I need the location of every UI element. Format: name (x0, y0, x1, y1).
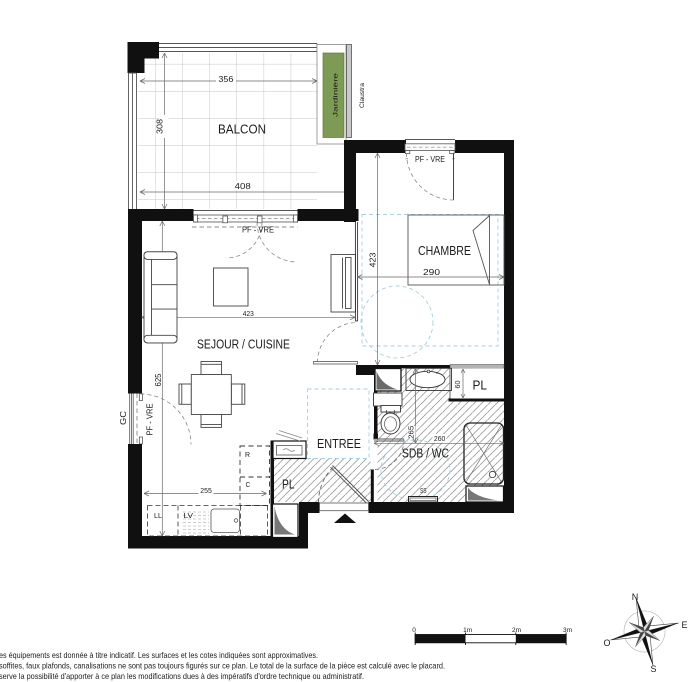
svg-text:PF - VRE: PF - VRE (146, 404, 155, 436)
svg-text:es équipements est donnée à ti: es équipements est donnée à titre indica… (0, 651, 318, 660)
svg-text:SEJOUR / CUISINE: SEJOUR / CUISINE (197, 338, 290, 352)
svg-text:LL: LL (154, 511, 162, 520)
svg-text:2m: 2m (512, 627, 521, 634)
svg-text:260: 260 (434, 434, 446, 443)
svg-text:PL: PL (473, 378, 488, 393)
svg-text:PF - VRE: PF - VRE (415, 155, 445, 164)
svg-text:60: 60 (455, 380, 462, 388)
svg-text:BALCON: BALCON (218, 123, 266, 137)
svg-text:265: 265 (407, 426, 416, 439)
svg-text:SS: SS (420, 488, 427, 495)
svg-text:GC: GC (119, 411, 128, 425)
svg-text:3m: 3m (563, 627, 572, 634)
svg-text:serve la possibilité d'apporte: serve la possibilité d'apporter à ce pla… (0, 672, 364, 681)
svg-text:R: R (245, 450, 251, 459)
svg-text:1m: 1m (463, 627, 472, 634)
svg-text:0: 0 (412, 627, 416, 634)
svg-text:423: 423 (369, 252, 378, 268)
svg-text:PF - VRE: PF - VRE (242, 226, 274, 235)
svg-text:Claustra: Claustra (359, 83, 366, 108)
svg-text:ENTREE: ENTREE (317, 437, 361, 451)
svg-text:423: 423 (243, 309, 254, 318)
svg-text:Jardinière: Jardinière (333, 72, 340, 117)
svg-text:C: C (246, 480, 251, 489)
svg-text:356: 356 (218, 75, 234, 84)
svg-text:SDB / WC: SDB / WC (402, 447, 449, 461)
svg-text:N: N (632, 592, 639, 602)
svg-text:O: O (603, 638, 610, 648)
svg-text:408: 408 (235, 182, 252, 191)
svg-text:625: 625 (154, 373, 163, 387)
svg-text:CHAMBRE: CHAMBRE (418, 244, 471, 258)
svg-text:E: E (681, 620, 687, 630)
svg-text:LV: LV (184, 511, 194, 520)
svg-text:308: 308 (156, 118, 165, 134)
svg-text:PL: PL (282, 478, 295, 492)
svg-text:290: 290 (423, 268, 441, 277)
svg-text:S: S (650, 664, 656, 674)
svg-text:255: 255 (200, 486, 212, 495)
svg-text:soffites, faux plafonds, canal: soffites, faux plafonds, canalisations n… (0, 662, 445, 671)
